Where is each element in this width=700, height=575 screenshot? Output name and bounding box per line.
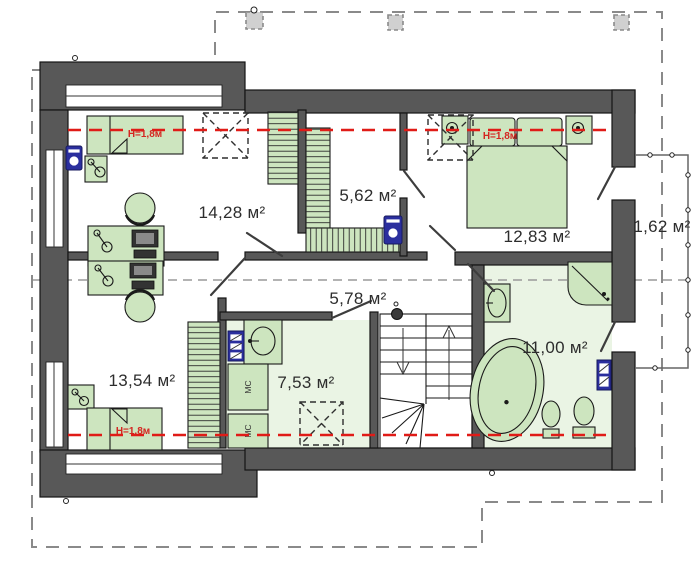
floor-plan-drawing: МС МС <box>0 0 700 575</box>
railing-post <box>686 278 690 282</box>
door-leaf-closet <box>404 171 424 197</box>
double-bed <box>467 146 567 228</box>
height-mark-label: H=1,8м <box>128 129 162 140</box>
stair-down-arrow <box>397 328 409 374</box>
wardrobe-hatch <box>268 112 298 184</box>
heater-dial <box>388 228 398 238</box>
railing-post <box>686 208 690 212</box>
wall-laundry-stair <box>370 312 378 448</box>
faucet-dot <box>248 339 252 343</box>
room-area-label: 13,54 м² <box>108 371 175 390</box>
railing-post <box>686 173 690 177</box>
room-area-label: 1,62 м² <box>633 217 690 236</box>
chimney-icon <box>388 15 403 30</box>
door-leaf-room-1354 <box>211 258 245 295</box>
computer-screen <box>134 266 152 275</box>
room-area-label: 14,28 м² <box>198 203 265 222</box>
railing-post <box>686 348 690 352</box>
railing-post <box>686 243 690 247</box>
bidet <box>542 401 560 427</box>
shower-head-dot <box>607 298 610 301</box>
computer-keyboard-icon <box>134 250 156 258</box>
computer-screen <box>136 233 154 244</box>
wall-room-closet <box>298 110 306 233</box>
floor-plan: МС МС <box>0 0 700 575</box>
stair-newel-post <box>392 309 403 320</box>
chair <box>125 193 155 223</box>
door-leaf-bedroom <box>430 226 455 250</box>
height-mark-label: H=1,8м <box>483 131 517 142</box>
chimney-vent-dot <box>251 7 257 13</box>
wall-right-upper <box>612 90 635 167</box>
room-area-label: 5,62 м² <box>339 186 396 205</box>
railing-post <box>648 153 652 157</box>
wall-right-lower <box>612 352 635 470</box>
bidet-base <box>543 429 559 438</box>
cabinet-label: МС <box>243 380 253 393</box>
stair-handrail-end <box>394 302 398 306</box>
wall-closet-right-upper <box>400 113 407 170</box>
heater-vent <box>386 219 400 223</box>
railing-post <box>653 366 657 370</box>
bed-pillow <box>517 118 562 146</box>
room-1354-furniture <box>68 261 220 450</box>
height-mark-label: H=1,8м <box>116 426 150 437</box>
wall-right-middle <box>612 200 635 322</box>
toilet-tank <box>573 427 595 438</box>
closet-rail-hatch <box>306 128 330 228</box>
skylight-cross <box>203 113 248 158</box>
heater-dial <box>69 156 79 166</box>
wall-laundry-top <box>220 312 332 320</box>
heater-vent <box>68 149 80 153</box>
chimney-icon <box>614 15 629 30</box>
chimney-icon <box>246 12 263 29</box>
room-area-label: 5,78 м² <box>329 289 386 308</box>
survey-point <box>490 471 495 476</box>
railing-post <box>670 153 674 157</box>
toilet-bowl <box>574 397 594 425</box>
staircase <box>380 302 472 448</box>
door-leaf-balcony-bedroom <box>598 167 615 199</box>
room-area-label: 11,00 м² <box>522 338 588 357</box>
room-area-label: 12,83 м² <box>503 227 570 246</box>
stair-treads <box>380 314 472 448</box>
railing-post <box>686 313 690 317</box>
computer-keyboard-icon <box>132 281 154 289</box>
chair <box>125 292 155 322</box>
wall-bottom-band <box>245 448 635 470</box>
room-area-label: 7,53 м² <box>277 373 334 392</box>
shower-head-icon <box>602 292 606 296</box>
survey-point <box>73 56 78 61</box>
wardrobe-hatch <box>188 322 220 448</box>
stair-up-arrow <box>443 326 455 400</box>
survey-point <box>64 499 69 504</box>
